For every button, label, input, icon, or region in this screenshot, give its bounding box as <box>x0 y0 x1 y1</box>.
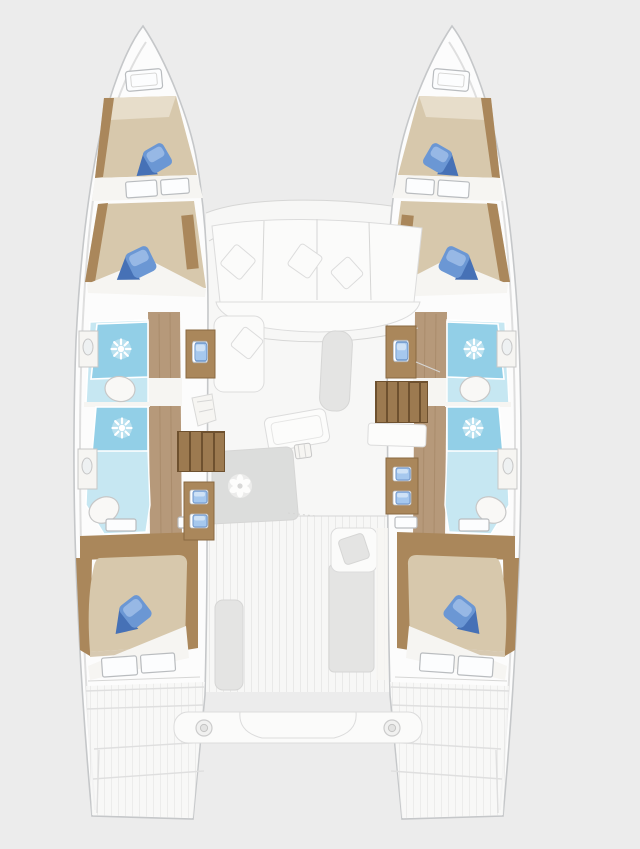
forward-cabin-shelf <box>160 178 189 195</box>
aft-cabin <box>76 517 200 681</box>
chart-seat <box>319 330 353 411</box>
transom-steps <box>86 682 206 818</box>
forward-cabin <box>85 175 206 297</box>
hull-corridor <box>148 312 182 540</box>
forward-bathroom <box>79 320 150 407</box>
aft-crossbeam-bench <box>174 712 422 743</box>
port-companionway-steps <box>177 431 225 472</box>
port-aft-panel <box>184 482 214 540</box>
forward-cabin-shelf <box>125 180 157 198</box>
stern-window <box>101 656 137 677</box>
catamaran-floor-plan <box>0 0 640 849</box>
cockpit-seat-cushion <box>331 528 377 572</box>
stern-window <box>140 653 175 673</box>
cockpit-bench-port <box>215 600 243 690</box>
port-entry-panel <box>186 330 215 378</box>
starboard-companionway-steps <box>375 381 428 423</box>
cockpit-bench-starboard <box>329 564 374 672</box>
stove-burner-icon <box>228 474 252 498</box>
sink-icon <box>294 443 312 459</box>
starboard-counter <box>368 423 427 447</box>
starboard-aft-panel <box>386 458 418 514</box>
port-chaise-seat <box>214 316 264 392</box>
